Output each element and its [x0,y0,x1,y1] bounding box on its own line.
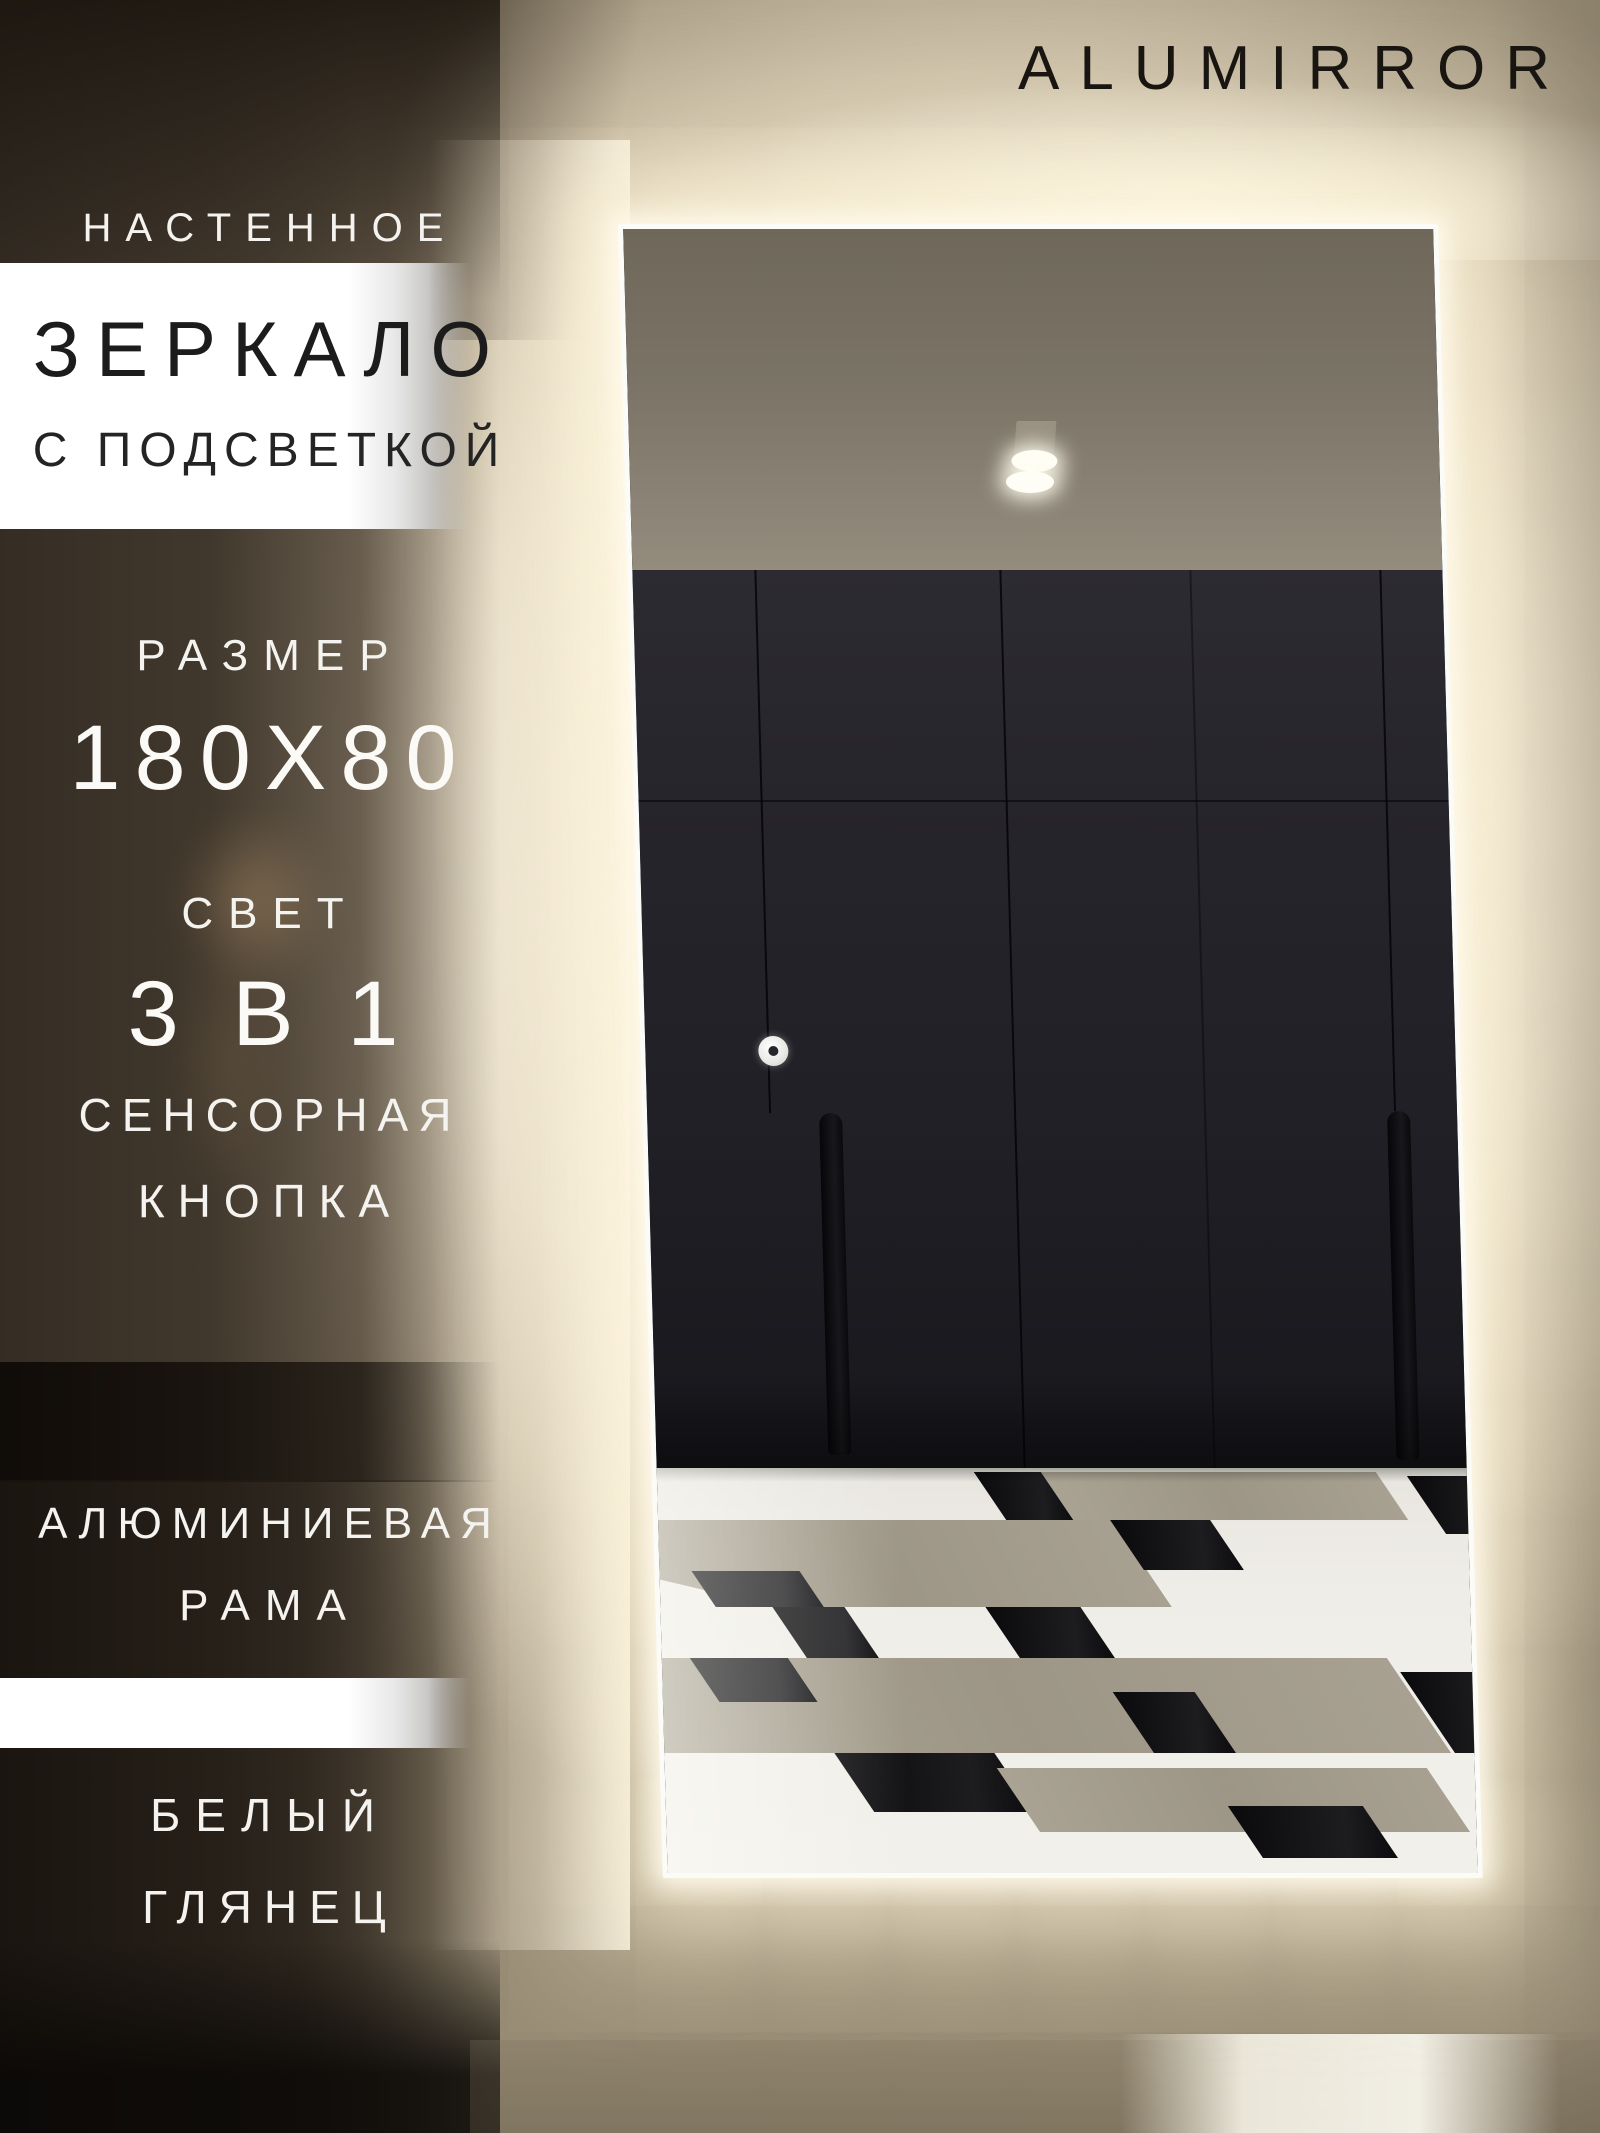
label-size-title: РАЗМЕР [0,634,540,678]
floor-glow-sheen [657,1468,911,1873]
door-knob [758,1036,789,1066]
product-photo: ALUMIRROR НАСТЕННОЕ ЗЕРКАЛО С ПОДСВЕТКОЙ… [0,0,1600,2133]
brand-logo: ALUMIRROR [1018,38,1570,100]
label-frame-word1: АЛЮМИНИЕВАЯ [0,1502,540,1546]
label-product-type: НАСТЕННОЕ [0,208,540,248]
wardrobe-floor-shadow [654,1378,1466,1468]
floor-accent-black [985,1607,1114,1658]
wardrobe-seam [639,800,1449,802]
spotlight-bulb-icon [1006,471,1055,493]
reflection-wardrobe [632,570,1466,1468]
wardrobe-seam [1379,570,1396,1111]
label-product-feature: С ПОДСВЕТКОЙ [0,427,540,475]
mirror-reflection [623,229,1477,1873]
label-light-value: 3 В 1 [0,968,540,1060]
wardrobe-seam [754,570,771,1113]
reflection-ceiling [623,229,1442,570]
floor-tile-gray [997,1768,1470,1832]
console-table-shadow [0,1362,500,1482]
wardrobe-seam [999,570,1025,1468]
label-touch-word2: КНОПКА [0,1178,540,1224]
label-size-value: 180X80 [0,712,540,804]
wardrobe-seam [1189,570,1215,1468]
label-touch-word1: СЕНСОРНАЯ [0,1092,540,1138]
highlight-band-bottom [0,1678,470,1748]
label-light-title: СВЕТ [0,892,540,936]
floor-accent-black [1407,1476,1478,1534]
label-frame-word2: РАМА [0,1584,540,1628]
reflection-floor [657,1468,1478,1873]
spotlight-bulb-icon [1011,450,1058,472]
label-product-name: ЗЕРКАЛО [0,310,540,388]
mirror [618,224,1483,1878]
label-finish-word1: БЕЛЫЙ [0,1792,540,1838]
bottom-right-lit-floor [1120,2034,1560,2133]
highlight-band-top [0,263,470,529]
label-finish-word2: ГЛЯНЕЦ [0,1884,540,1930]
left-column-bottom-shade [0,1940,500,2133]
left-column-top-shade [0,0,500,300]
